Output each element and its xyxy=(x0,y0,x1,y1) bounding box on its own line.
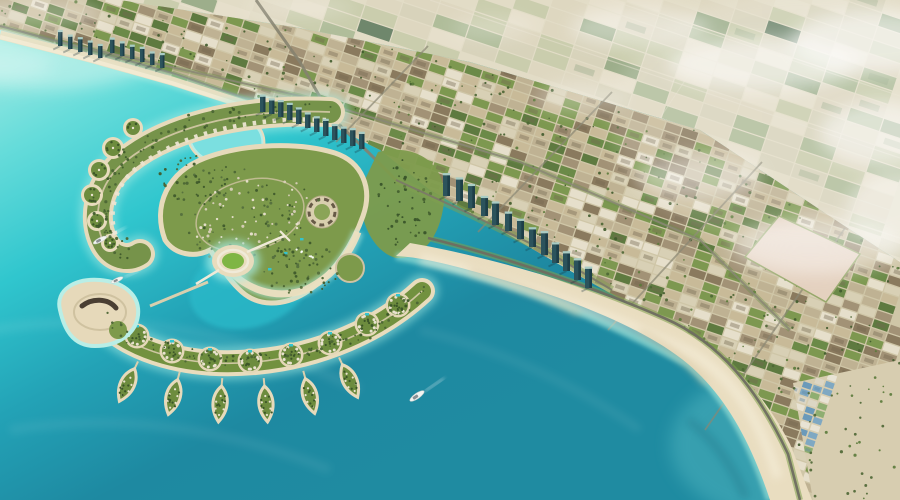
swirl-villa xyxy=(136,343,139,346)
tree-dot xyxy=(123,151,126,154)
tree-dot xyxy=(185,182,188,185)
tree-dot xyxy=(109,230,112,233)
swirl-villa xyxy=(328,350,331,353)
tree-dot xyxy=(250,355,253,358)
tree-dot xyxy=(209,357,211,359)
tree-dot xyxy=(219,203,222,206)
tree-dot xyxy=(308,354,310,356)
tree-dot xyxy=(875,350,877,352)
tree-dot xyxy=(371,324,374,327)
tree-dot xyxy=(509,202,512,205)
tree-dot xyxy=(416,301,419,304)
tree-dot xyxy=(126,331,128,333)
tree-dot xyxy=(196,244,198,246)
tree-dot xyxy=(119,257,121,259)
tree-dot xyxy=(638,271,640,273)
tree-dot xyxy=(288,194,290,196)
tree-dot xyxy=(203,186,205,188)
tree-dot xyxy=(809,421,811,423)
swirl-tree xyxy=(291,351,293,353)
tree-dot xyxy=(397,190,400,193)
tree-dot xyxy=(359,333,362,336)
tree-dot xyxy=(402,142,405,145)
tree-dot xyxy=(120,322,122,324)
tree-dot xyxy=(221,170,223,172)
swirl-tree xyxy=(208,354,210,356)
palm-tree xyxy=(106,149,108,151)
tree-dot xyxy=(889,393,892,396)
tree-dot xyxy=(189,157,191,159)
tree-dot xyxy=(266,40,268,42)
tower-roof xyxy=(68,35,73,37)
tree-dot xyxy=(194,175,197,178)
tree-dot xyxy=(193,55,195,57)
tree-dot xyxy=(225,198,228,201)
tree-dot xyxy=(253,216,255,218)
tree-dot xyxy=(223,179,226,182)
scene-svg xyxy=(0,0,900,500)
tree-dot xyxy=(728,357,730,359)
tree-dot xyxy=(241,225,244,228)
tree-dot xyxy=(93,30,95,32)
tree-dot xyxy=(280,250,283,253)
tree-dot xyxy=(111,169,114,172)
tree-dot xyxy=(108,15,111,18)
tree-dot xyxy=(250,232,253,235)
resort-ring xyxy=(336,254,364,282)
tree-dot xyxy=(256,359,258,361)
tree-dot xyxy=(233,120,236,123)
swirl-pool xyxy=(328,332,332,335)
swirl-tree xyxy=(325,344,327,346)
haze-cloud xyxy=(452,16,532,40)
tree-dot xyxy=(241,206,244,209)
tree-dot xyxy=(147,135,149,137)
tower-side xyxy=(272,101,274,114)
tree-dot xyxy=(535,196,537,198)
tree-dot xyxy=(226,34,228,36)
tree-dot xyxy=(343,339,344,340)
tree-dot xyxy=(163,346,165,348)
palm-tree xyxy=(111,239,113,241)
tree-dot xyxy=(161,40,164,43)
tree-dot xyxy=(882,386,884,388)
tree-dot xyxy=(261,185,264,188)
tree-dot xyxy=(893,466,896,469)
tree-dot xyxy=(176,181,179,184)
tree-dot xyxy=(825,431,828,434)
tree-dot xyxy=(657,243,659,245)
swirl-villa xyxy=(248,368,251,371)
tree-dot xyxy=(609,257,612,260)
tree-dot xyxy=(395,244,397,246)
tree-dot xyxy=(182,47,184,49)
tree-dot xyxy=(869,325,871,327)
tree-dot xyxy=(144,141,146,143)
tree-dot xyxy=(474,94,477,97)
tree-dot xyxy=(440,103,442,105)
tree-dot xyxy=(394,102,396,104)
tree-dot xyxy=(851,394,854,397)
tree-dot xyxy=(117,246,119,248)
tree-dot xyxy=(858,441,861,444)
tower-side xyxy=(61,32,63,46)
tree-dot xyxy=(643,298,646,301)
tree-dot xyxy=(271,285,274,288)
tree-dot xyxy=(401,216,403,218)
tree-dot xyxy=(398,106,400,108)
tree-dot xyxy=(201,353,203,355)
tree-dot xyxy=(296,265,299,268)
tree-dot xyxy=(839,290,842,293)
tree-dot xyxy=(121,240,123,242)
tree-dot xyxy=(263,213,266,216)
tower-side xyxy=(578,260,581,280)
palm-tree xyxy=(104,167,106,169)
tree-dot xyxy=(853,490,856,493)
tower-side xyxy=(472,186,475,208)
tree-dot xyxy=(164,342,166,344)
tree-dot xyxy=(194,214,196,216)
tree-dot xyxy=(288,258,290,260)
tree-dot xyxy=(507,86,510,89)
tree-dot xyxy=(237,116,240,119)
tree-dot xyxy=(209,193,212,196)
tower-side xyxy=(344,129,346,143)
tree-dot xyxy=(303,257,305,259)
tree-dot xyxy=(575,250,577,252)
tree-dot xyxy=(491,181,493,183)
tower-roof xyxy=(492,201,500,203)
tree-dot xyxy=(308,103,310,105)
tree-dot xyxy=(543,211,545,213)
tree-dot xyxy=(209,180,212,183)
tree-dot xyxy=(295,201,297,203)
tree-dot xyxy=(742,346,744,348)
tree-dot xyxy=(528,120,530,122)
swirl-pool xyxy=(170,340,174,343)
tree-dot xyxy=(870,476,873,479)
swirl-villa xyxy=(178,352,181,355)
tree-dot xyxy=(98,223,100,225)
tree-dot xyxy=(791,326,793,328)
tree-dot xyxy=(434,126,436,128)
swirl-pool xyxy=(248,350,252,353)
tree-dot xyxy=(502,91,505,94)
tree-dot xyxy=(120,163,123,166)
tree-dot xyxy=(99,192,101,194)
tree-dot xyxy=(326,84,328,86)
tree-dot xyxy=(206,350,209,353)
tree-dot xyxy=(593,126,594,127)
tree-dot xyxy=(328,281,330,283)
tree-dot xyxy=(393,167,395,169)
tower-side xyxy=(81,39,83,52)
tree-dot xyxy=(263,205,265,207)
tree-dot xyxy=(395,220,398,223)
palm-tree xyxy=(117,144,119,146)
tree-dot xyxy=(126,158,129,161)
tree-dot xyxy=(328,251,330,253)
tree-dot xyxy=(276,282,278,284)
swirl-villa xyxy=(321,338,324,341)
tree-dot xyxy=(105,239,107,241)
tree-dot xyxy=(188,232,191,235)
tree-dot xyxy=(214,169,216,171)
tree-dot xyxy=(205,44,208,47)
tree-dot xyxy=(321,277,323,279)
tree-dot xyxy=(288,221,290,223)
tower-side xyxy=(317,118,319,132)
tree-dot xyxy=(881,425,884,428)
tree-dot xyxy=(786,359,788,361)
tree-dot xyxy=(291,213,294,216)
tree-dot xyxy=(287,217,290,220)
tree-dot xyxy=(247,238,249,240)
tree-dot xyxy=(604,262,606,264)
tree-dot xyxy=(222,205,224,207)
tree-dot xyxy=(212,202,214,204)
tree-dot xyxy=(354,45,356,47)
tree-dot xyxy=(198,181,201,184)
tree-dot xyxy=(111,327,113,329)
tree-dot xyxy=(732,294,734,296)
tower-roof xyxy=(443,173,451,175)
tree-dot xyxy=(610,283,612,285)
tree-dot xyxy=(203,226,206,229)
tree-dot xyxy=(776,336,778,338)
tree-dot xyxy=(283,66,285,68)
swirl-green xyxy=(357,314,377,334)
tree-dot xyxy=(606,272,609,275)
tower-side xyxy=(496,204,499,225)
tree-dot xyxy=(809,459,811,461)
tree-dot xyxy=(431,89,433,91)
tree-dot xyxy=(765,325,768,328)
tree-dot xyxy=(603,228,606,231)
tower-side xyxy=(353,130,355,146)
tree-dot xyxy=(193,163,196,166)
tree-dot xyxy=(428,211,430,213)
tower-side xyxy=(485,198,488,216)
tree-dot xyxy=(253,354,255,356)
tree-dot xyxy=(167,130,170,133)
swirl-tree xyxy=(367,320,369,322)
tree-dot xyxy=(220,176,222,178)
tree-dot xyxy=(289,214,291,216)
tree-dot xyxy=(246,180,249,183)
tower-side xyxy=(460,180,463,201)
tree-dot xyxy=(397,241,399,243)
tree-dot xyxy=(271,223,273,225)
tree-dot xyxy=(374,76,376,78)
tree-dot xyxy=(274,255,276,257)
tree-dot xyxy=(659,294,662,297)
tree-dot xyxy=(103,210,105,212)
tower-side xyxy=(101,46,103,58)
tree-dot xyxy=(108,186,111,189)
tree-dot xyxy=(809,469,812,472)
tree-dot xyxy=(106,177,109,180)
tree-dot xyxy=(105,230,107,232)
tree-dot xyxy=(690,309,692,311)
palm-tree xyxy=(101,164,103,166)
tree-dot xyxy=(266,205,269,208)
tree-dot xyxy=(826,327,828,329)
tree-dot xyxy=(810,461,812,463)
tree-dot xyxy=(879,265,881,267)
tree-dot xyxy=(306,197,308,199)
tree-dot xyxy=(314,258,317,261)
tree-dot xyxy=(411,82,414,85)
tree-dot xyxy=(185,175,188,178)
tree-dot xyxy=(113,251,116,254)
tree-dot xyxy=(247,191,249,193)
tree-dot xyxy=(868,388,870,390)
tree-dot xyxy=(183,182,186,185)
tree-dot xyxy=(503,133,505,135)
tree-dot xyxy=(397,215,399,217)
tree-dot xyxy=(755,363,757,365)
tree-dot xyxy=(410,232,412,234)
swirl-villa xyxy=(370,330,373,333)
tower-side xyxy=(509,214,512,231)
tree-dot xyxy=(360,77,362,79)
body-pool xyxy=(300,238,304,240)
tree-dot xyxy=(763,315,765,317)
tree-dot xyxy=(288,204,291,207)
tower-roof xyxy=(314,116,320,118)
tree-dot xyxy=(133,162,135,164)
tree-dot xyxy=(607,188,610,191)
tree-dot xyxy=(399,201,401,203)
tree-dot xyxy=(93,212,96,215)
tree-dot xyxy=(807,344,809,346)
tree-dot xyxy=(844,428,847,431)
tree-dot xyxy=(105,218,108,221)
tree-dot xyxy=(339,334,341,336)
tree-dot xyxy=(870,341,872,343)
tree-dot xyxy=(330,60,333,63)
tower-side xyxy=(281,102,283,117)
tree-dot xyxy=(225,27,228,30)
tree-dot xyxy=(143,149,145,151)
tree-dot xyxy=(419,220,421,222)
tree-dot xyxy=(243,168,245,170)
tree-dot xyxy=(688,325,689,326)
tree-dot xyxy=(226,356,228,358)
tower-roof xyxy=(585,267,593,269)
swirl-tree xyxy=(169,352,171,354)
tree-dot xyxy=(183,129,185,131)
swirl-tree xyxy=(213,360,215,362)
tree-dot xyxy=(281,214,283,216)
tree-dot xyxy=(293,206,295,208)
tower-side xyxy=(290,105,292,120)
tree-dot xyxy=(435,60,437,62)
tower-side xyxy=(545,233,548,255)
tree-dot xyxy=(805,301,807,303)
tree-dot xyxy=(290,280,293,283)
tree-dot xyxy=(754,339,756,341)
tree-dot xyxy=(539,233,542,236)
tree-dot xyxy=(159,172,162,175)
roundabout-green xyxy=(222,253,244,269)
tower-roof xyxy=(529,227,537,229)
tree-dot xyxy=(252,199,255,202)
tree-dot xyxy=(798,443,801,446)
tree-dot xyxy=(413,172,415,174)
tree-dot xyxy=(422,198,425,201)
swirl-pool xyxy=(365,313,369,316)
tree-dot xyxy=(387,319,390,322)
tree-dot xyxy=(399,313,401,315)
tower-roof xyxy=(332,124,338,126)
tree-dot xyxy=(325,248,328,251)
tower-roof xyxy=(140,47,145,49)
tower-side xyxy=(91,43,93,55)
tree-dot xyxy=(182,37,184,39)
tree-dot xyxy=(607,172,609,174)
tree-dot xyxy=(125,46,127,48)
tree-dot xyxy=(173,351,175,353)
tree-dot xyxy=(111,321,114,324)
tree-dot xyxy=(93,197,95,199)
tree-dot xyxy=(172,344,174,346)
tree-dot xyxy=(295,262,297,264)
tree-dot xyxy=(194,358,195,359)
tree-dot xyxy=(317,272,320,275)
tree-dot xyxy=(229,119,232,122)
tree-dot xyxy=(292,255,294,257)
tree-dot xyxy=(293,210,296,213)
palm-tree xyxy=(128,123,130,125)
tree-dot xyxy=(238,192,241,195)
tree-dot xyxy=(321,288,323,290)
tree-dot xyxy=(423,290,425,292)
tree-dot xyxy=(237,177,240,180)
swirl-tree xyxy=(248,363,250,365)
tree-dot xyxy=(285,264,288,267)
swirl-tree xyxy=(245,363,247,365)
tree-dot xyxy=(247,356,250,359)
tree-dot xyxy=(614,237,617,240)
tree-dot xyxy=(120,334,123,337)
tree-dot xyxy=(334,278,336,280)
swirl-villa xyxy=(334,336,337,339)
tree-dot xyxy=(420,292,421,293)
tree-dot xyxy=(94,200,97,203)
tree-dot xyxy=(160,132,163,135)
tower-side xyxy=(143,49,145,62)
swirl-villa xyxy=(287,361,290,364)
tree-dot xyxy=(679,318,682,321)
tree-dot xyxy=(311,348,312,349)
tree-dot xyxy=(168,346,170,348)
tree-dot xyxy=(173,194,176,197)
tree-dot xyxy=(106,312,108,314)
tree-dot xyxy=(793,367,796,370)
tree-dot xyxy=(423,231,426,234)
tree-dot xyxy=(408,114,410,116)
tower-roof xyxy=(563,251,571,253)
tree-dot xyxy=(278,247,280,249)
tree-dot xyxy=(296,280,299,283)
tree-dot xyxy=(415,225,417,227)
tree-dot xyxy=(226,60,227,61)
tree-dot xyxy=(224,364,226,366)
tree-dot xyxy=(216,218,218,220)
